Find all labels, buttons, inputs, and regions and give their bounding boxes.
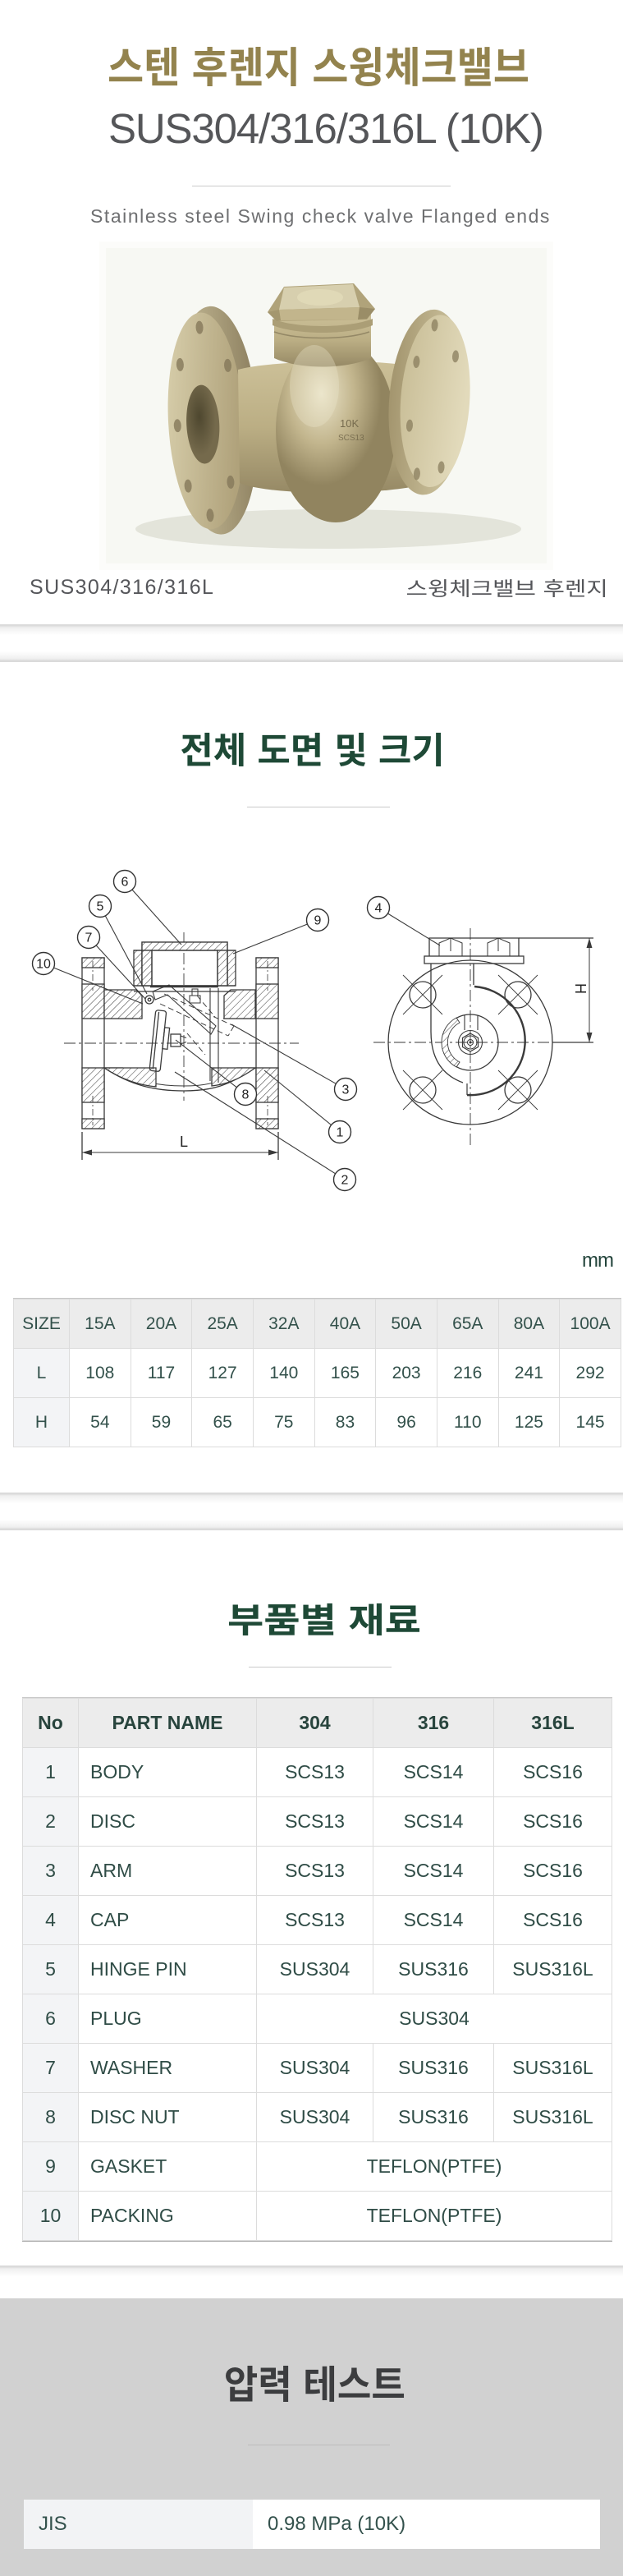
svg-text:SCS13: SCS13 xyxy=(338,434,364,443)
svg-text:10K: 10K xyxy=(340,417,359,430)
svg-text:7: 7 xyxy=(85,931,93,945)
svg-text:4: 4 xyxy=(375,902,383,916)
svg-text:10: 10 xyxy=(36,958,51,972)
svg-text:1: 1 xyxy=(337,1126,344,1140)
svg-text:H: H xyxy=(572,983,589,994)
svg-text:6: 6 xyxy=(121,876,129,890)
svg-text:L: L xyxy=(180,1134,188,1150)
svg-text:5: 5 xyxy=(97,900,104,914)
svg-text:2: 2 xyxy=(341,1174,349,1188)
svg-text:9: 9 xyxy=(314,914,322,928)
svg-text:3: 3 xyxy=(342,1083,350,1097)
svg-text:8: 8 xyxy=(242,1088,250,1102)
